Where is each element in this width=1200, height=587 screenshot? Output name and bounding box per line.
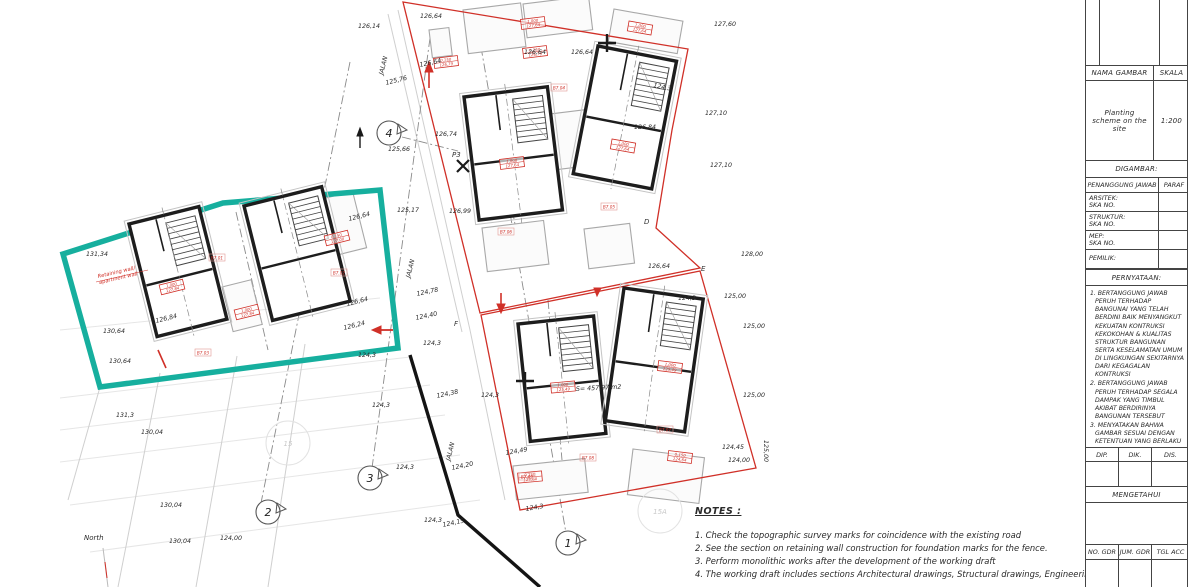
spot-elevation-label: 124,3 bbox=[481, 392, 499, 399]
spot-elevation-label: 124,3 bbox=[396, 464, 414, 471]
spot-elevation-label: 126,64 bbox=[648, 263, 670, 270]
party-label: PEMILIK: bbox=[1086, 250, 1158, 268]
party-label: STRUKTUR:SKA NO. bbox=[1086, 212, 1158, 230]
spot-elevation-label: 126,64 bbox=[420, 13, 442, 20]
svg-text:B7.02: B7.02 bbox=[333, 271, 346, 276]
notes-list: 1. Check the topographic survey marks fo… bbox=[695, 529, 1125, 581]
title-block: NAMA GAMBAR SKALA Planting scheme on the… bbox=[1085, 0, 1188, 587]
svg-text:1: 1 bbox=[565, 537, 572, 550]
building bbox=[513, 308, 611, 450]
party-row: PEMILIK: bbox=[1086, 250, 1187, 269]
spot-elevation-label: JALAN bbox=[405, 258, 417, 280]
spot-elevation-label: 127,10 bbox=[710, 162, 732, 169]
spot-elevation-label: 124,3 bbox=[525, 503, 544, 513]
spot-elevation-label: 124,00 bbox=[220, 535, 242, 542]
svg-text:B7.07: B7.07 bbox=[659, 428, 672, 433]
spot-elevation-label: 124,00 bbox=[728, 457, 750, 464]
spot-elevation-label: 126,99 bbox=[449, 208, 471, 215]
red-tag: B7.05 bbox=[601, 203, 617, 210]
svg-text:3: 3 bbox=[367, 472, 374, 485]
svg-text:B7.04: B7.04 bbox=[553, 86, 566, 91]
spot-elevation-label: JALAN bbox=[445, 441, 457, 463]
party-row: ARSITEK:SKA NO. bbox=[1086, 193, 1187, 212]
paraf-cell bbox=[1158, 250, 1189, 268]
spot-elevation-label: 125,00 bbox=[762, 440, 769, 462]
red-tag: B7.06 bbox=[498, 228, 514, 235]
party-row: MEP:SKA NO. bbox=[1086, 231, 1187, 250]
spot-elevation-label: 124,3 bbox=[372, 402, 390, 409]
party-label: MEP:SKA NO. bbox=[1086, 231, 1158, 249]
black-up-arrow bbox=[357, 128, 363, 148]
spot-elevation-label: 126,14 bbox=[358, 23, 380, 30]
spot-elevation-label: 124,49 bbox=[505, 446, 528, 457]
digambar-label: DIGAMBAR: bbox=[1086, 161, 1187, 178]
party-row: STRUKTUR:SKA NO. bbox=[1086, 212, 1187, 231]
svg-text:15A: 15A bbox=[653, 508, 667, 516]
tb-column-header: TGL ACC bbox=[1151, 545, 1189, 559]
mengetahui-label: MENGETAHUI bbox=[1086, 487, 1187, 503]
notes-block: NOTES : 1. Check the topographic survey … bbox=[695, 506, 1125, 581]
red-road-marker bbox=[594, 288, 601, 296]
spot-elevation-label: 124,45 bbox=[722, 444, 744, 451]
spot-elevation-label: 124,3 bbox=[358, 352, 376, 359]
svg-text:4: 4 bbox=[386, 127, 393, 140]
spot-elevation-label: 126,64 bbox=[524, 49, 546, 56]
spot-elevation-label: 125,00 bbox=[743, 392, 765, 399]
paraf-cell bbox=[1158, 193, 1189, 211]
spot-elevation-label: 130,04 bbox=[169, 538, 191, 545]
paraf-cell bbox=[1158, 231, 1189, 249]
svg-text:B7.03: B7.03 bbox=[197, 351, 210, 356]
spot-elevation-label: 124,3 bbox=[423, 340, 441, 347]
spot-elevation-label: JALAN bbox=[378, 55, 390, 77]
x-marker bbox=[457, 160, 469, 172]
spot-elevation-label: 126,24 bbox=[343, 320, 366, 332]
spot-elevation-label: 125,17 bbox=[397, 207, 419, 214]
spot-elevation-label: 125,00 bbox=[743, 323, 765, 330]
note-item: 1. Check the topographic survey marks fo… bbox=[695, 529, 1125, 542]
spot-elevation-label: 124,20 bbox=[451, 461, 474, 472]
reference-circles: 1515A bbox=[266, 421, 682, 533]
spot-elevation-label: 126,84 bbox=[634, 124, 656, 131]
building bbox=[123, 198, 233, 345]
nama-gambar-label: NAMA GAMBAR bbox=[1086, 66, 1153, 80]
spot-elevation-label: 126,64 bbox=[571, 49, 593, 56]
spot-elevation-label: 128,00 bbox=[741, 251, 763, 258]
axis-bubble: 2 bbox=[256, 500, 286, 524]
spot-elevation-label: 124,3 bbox=[424, 517, 442, 524]
spot-elevation-label: 127,10 bbox=[705, 110, 727, 117]
red-tag: B7.02 bbox=[331, 269, 347, 276]
svg-text:B7.09: B7.09 bbox=[521, 475, 534, 480]
grid-letter: D bbox=[644, 218, 650, 226]
spot-elevation-label: 124,3 bbox=[678, 295, 696, 302]
grid-letter: F bbox=[454, 320, 459, 328]
north-indicator bbox=[103, 548, 108, 587]
penanggung-label: PENANGGUNG JAWAB bbox=[1086, 178, 1158, 192]
note-item: 3. Perform monolithic works after the de… bbox=[695, 555, 1125, 568]
red-tag: B7.01 bbox=[209, 254, 225, 261]
axis-bubble: 1 bbox=[556, 531, 586, 555]
spot-elevation-label: 131,3 bbox=[116, 412, 134, 419]
drawing-title: Planting scheme on the site bbox=[1086, 81, 1153, 160]
svg-text:B7.01: B7.01 bbox=[211, 256, 224, 261]
red-tag: B7.04 bbox=[551, 84, 567, 91]
tb-column-header: DIP. bbox=[1086, 448, 1118, 461]
statement-item: 3. MENYATAKAN BAHWA GAMBAR SESUAI DENGAN… bbox=[1088, 422, 1185, 445]
red-tag: B7.03 bbox=[195, 349, 211, 356]
spot-elevation-label: 125,66 bbox=[388, 146, 410, 153]
spot-elevation-label: 130,64 bbox=[109, 358, 131, 365]
party-label: ARSITEK:SKA NO. bbox=[1086, 193, 1158, 211]
site-plan-svg: 1515A 1234 1,000127,641,000127,640,15012… bbox=[0, 0, 1200, 587]
paraf-label: PARAF bbox=[1158, 178, 1189, 192]
spot-elevation-label: 130,04 bbox=[160, 502, 182, 509]
note-item: 2. See the section on retaining wall con… bbox=[695, 542, 1125, 555]
svg-text:15: 15 bbox=[284, 440, 293, 448]
red-tag: B7.08 bbox=[580, 454, 596, 461]
grid-letter: E bbox=[701, 265, 706, 273]
scale-value: 1:200 bbox=[1153, 81, 1189, 160]
statement-item: 1. BERTANGGUNG JAWAB PERUH TERHADAP BANG… bbox=[1088, 290, 1185, 379]
statement-item: 2. BERTANGGUNG JAWAB PERUH TERHADAP SEGA… bbox=[1088, 380, 1185, 421]
tb-column-header: JUM. GDR bbox=[1118, 545, 1151, 559]
building bbox=[459, 78, 567, 228]
drawing-sheet: 1515A 1234 1,000127,641,000127,640,15012… bbox=[0, 0, 1200, 587]
north-label: North bbox=[84, 534, 104, 542]
spot-elevation-label: 124,78 bbox=[416, 287, 439, 298]
svg-text:B7.06: B7.06 bbox=[500, 230, 513, 235]
svg-text:B7.08: B7.08 bbox=[582, 456, 595, 461]
note-item: 4. The working draft includes sections A… bbox=[695, 568, 1125, 581]
spot-elevation-label: 130,64 bbox=[103, 328, 125, 335]
spot-elevation-label: 124,38 bbox=[436, 389, 459, 400]
red-tag: B7.07 bbox=[657, 426, 673, 433]
grid-letter: P3 bbox=[452, 151, 461, 159]
spot-elevation-label: 127,60 bbox=[714, 21, 736, 28]
paraf-cell bbox=[1158, 212, 1189, 230]
axis-bubble: 3 bbox=[358, 466, 388, 490]
spot-elevation-label: 124,15 bbox=[442, 518, 465, 529]
tb-column-header: DIK. bbox=[1118, 448, 1151, 461]
pernyataan-label: PERNYATAAN: bbox=[1086, 269, 1187, 286]
svg-text:B7.05: B7.05 bbox=[603, 205, 616, 210]
red-tag: B7.09 bbox=[519, 473, 535, 480]
spot-elevation-label: 130,04 bbox=[141, 429, 163, 436]
spot-elevation-label: 126,74 bbox=[435, 131, 457, 138]
building bbox=[600, 280, 708, 441]
spot-elevation-label: 131,34 bbox=[86, 251, 108, 258]
spot-elevation-label: 125,00 bbox=[724, 293, 746, 300]
svg-text:2: 2 bbox=[265, 506, 272, 519]
skala-label: SKALA bbox=[1153, 66, 1189, 80]
level-box: 1,000125,49 bbox=[551, 381, 576, 393]
axis-bubble: 4 bbox=[377, 121, 407, 145]
spot-elevation-label: 124,40 bbox=[415, 311, 438, 322]
tb-column-header: DIS. bbox=[1151, 448, 1189, 461]
notes-heading: NOTES : bbox=[695, 506, 1125, 517]
statement-list: 1. BERTANGGUNG JAWAB PERUH TERHADAP BANG… bbox=[1088, 290, 1185, 445]
tb-column-header: NO. GDR bbox=[1086, 545, 1118, 559]
